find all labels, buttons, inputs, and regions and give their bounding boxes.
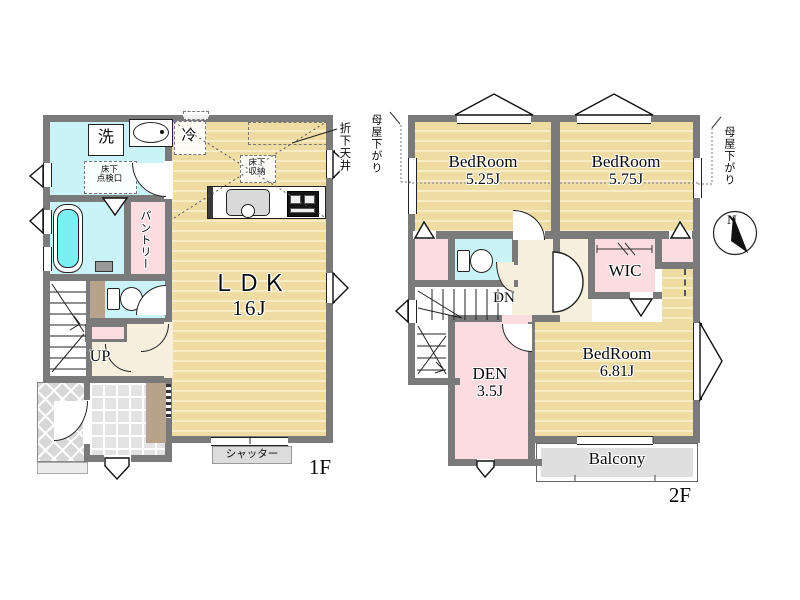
roof-slope-bracket-right xyxy=(698,128,712,184)
refrigerator-label: 冷 xyxy=(174,128,204,144)
underfloor-storage-label: 床下 収納 xyxy=(240,158,274,176)
roof-slope-left-label: 母屋下がり xyxy=(369,100,381,188)
wic-label: WIC xyxy=(596,262,654,280)
shutter-label: シャッター xyxy=(213,447,291,463)
floor1-label: 1F xyxy=(298,456,342,479)
floor2-linework xyxy=(0,0,800,600)
compass: N xyxy=(708,206,764,262)
pantry-label: パントリー xyxy=(138,207,150,273)
den-window-mark xyxy=(477,461,494,477)
laundry-machine-label: 洗 xyxy=(88,129,124,146)
roof-slope-tick-left xyxy=(390,112,400,124)
bedroom-b-label: BedRoom 5.75J xyxy=(562,153,690,189)
door-arc-bedroom-c xyxy=(553,252,583,312)
dropped-ceiling-label: 折下天井 xyxy=(338,112,350,182)
roof-slope-bracket-left xyxy=(401,125,412,182)
stove-grill xyxy=(290,208,315,213)
bedroom-c-label: BedRoom 6.81J xyxy=(543,345,691,381)
gable-windows xyxy=(455,94,653,115)
ldk-label: ＬＤＫ 16J xyxy=(190,272,310,320)
balcony-label: Balcony xyxy=(552,450,682,468)
underfloor-inspection-label: 床下 点検口 xyxy=(84,165,135,183)
stove-burner xyxy=(304,195,315,204)
stairs-dn-label: DN xyxy=(484,290,524,306)
wic-hanger-pipe xyxy=(597,243,652,255)
floor-plan-canvas: N ＬＤＫ 16J 洗 冷 パントリー 床下 点検口 床下 収納 折下天井 UP… xyxy=(0,0,800,600)
shutter-label-box: シャッター xyxy=(212,446,292,464)
den-label: DEN 3.5J xyxy=(452,365,528,401)
bedroom-a-label: BedRoom 5.25J xyxy=(418,153,548,189)
compass-north-label: N xyxy=(727,212,737,227)
floor2-label: 2F xyxy=(658,484,702,507)
roof-slope-right-label: 母屋下がり xyxy=(722,112,734,200)
stairs-up-label: UP xyxy=(82,348,118,365)
roof-slope-tick-right xyxy=(712,117,721,128)
stove-burner xyxy=(290,195,301,204)
